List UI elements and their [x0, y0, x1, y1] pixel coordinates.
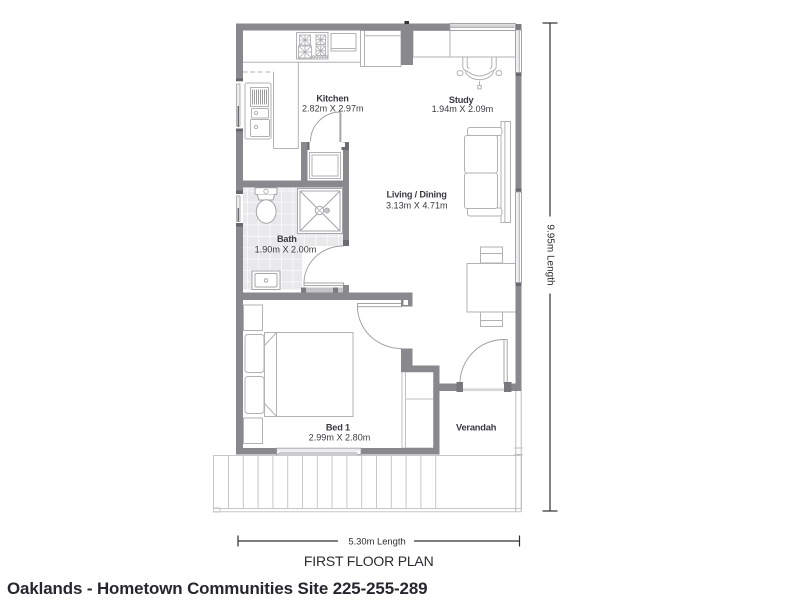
svg-text:1.94m X 2.09m: 1.94m X 2.09m	[432, 104, 494, 114]
svg-text:3.13m X 4.71m: 3.13m X 4.71m	[386, 200, 448, 210]
svg-text:9.95m Length: 9.95m Length	[544, 224, 555, 285]
svg-text:2.99m X 2.80m: 2.99m X 2.80m	[309, 433, 371, 443]
svg-text:5.30m Length: 5.30m Length	[348, 535, 405, 546]
svg-text:2.82m X 2.97m: 2.82m X 2.97m	[302, 104, 364, 114]
svg-text:1.90m X 2.00m: 1.90m X 2.00m	[255, 245, 317, 255]
svg-text:Verandah: Verandah	[456, 423, 497, 433]
svg-text:Kitchen: Kitchen	[316, 94, 349, 104]
svg-text:Bed 1: Bed 1	[326, 423, 350, 433]
svg-text:Living / Dining: Living / Dining	[386, 190, 446, 200]
svg-text:FIRST FLOOR PLAN: FIRST FLOOR PLAN	[304, 553, 434, 569]
svg-text:Oaklands - Hometown Communitie: Oaklands - Hometown Communities Site 225…	[7, 579, 427, 598]
svg-text:Bath: Bath	[277, 234, 297, 244]
